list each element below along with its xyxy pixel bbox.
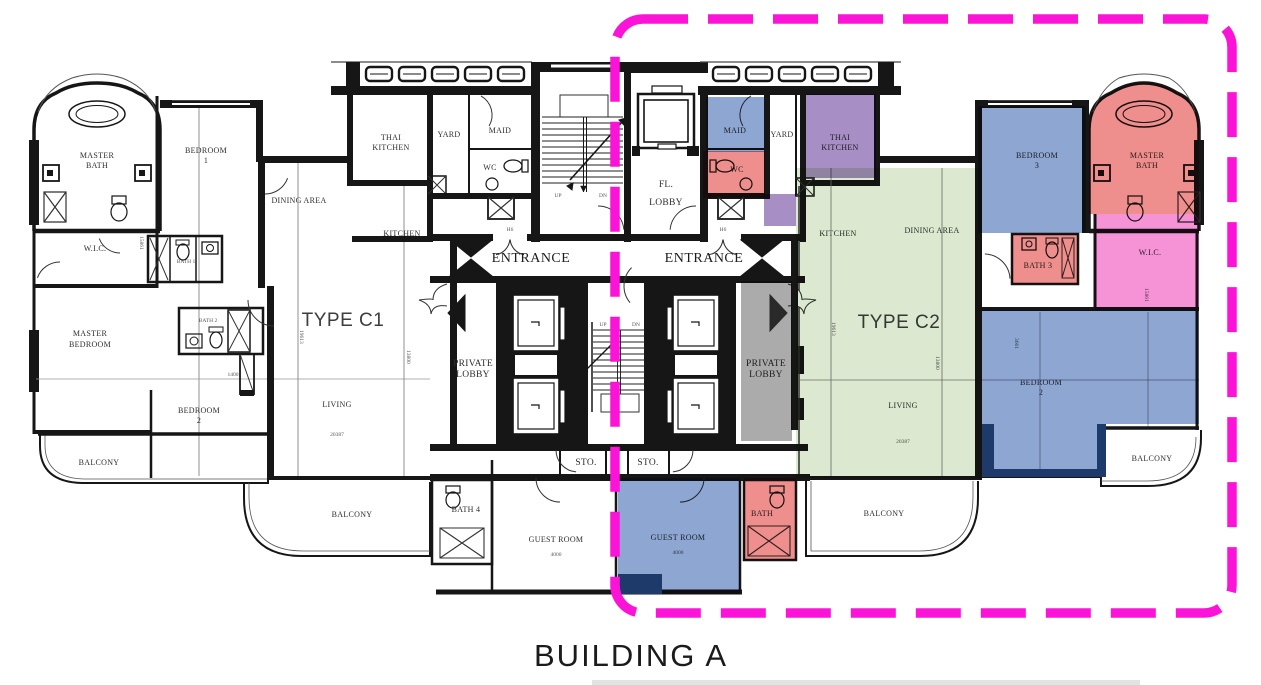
svg-text:UP: UP [554, 193, 561, 199]
svg-text:BATH 1: BATH 1 [177, 259, 196, 265]
svg-text:BALCONY: BALCONY [864, 509, 905, 518]
svg-text:19613: 19613 [298, 330, 304, 344]
svg-text:LIVING: LIVING [322, 400, 351, 409]
svg-text:BATH: BATH [86, 161, 108, 170]
svg-text:BEDROOM: BEDROOM [185, 146, 227, 155]
svg-text:YARD: YARD [438, 130, 461, 139]
svg-text:WC: WC [483, 163, 497, 172]
svg-text:MASTER: MASTER [73, 329, 108, 338]
svg-text:DN: DN [599, 193, 607, 199]
svg-text:BEDROOM: BEDROOM [178, 406, 220, 415]
svg-text:BATH 2: BATH 2 [199, 318, 218, 324]
svg-text:BALCONY: BALCONY [332, 510, 373, 519]
svg-text:MASTER: MASTER [80, 151, 115, 160]
svg-text:BEDROOM: BEDROOM [69, 340, 111, 349]
svg-text:BATH 4: BATH 4 [452, 505, 481, 514]
svg-text:FL.: FL. [659, 180, 673, 190]
svg-text:BUILDING A: BUILDING A [534, 638, 728, 673]
svg-text:H6: H6 [507, 227, 514, 233]
svg-text:LOBBY: LOBBY [649, 198, 683, 208]
svg-text:1400: 1400 [228, 372, 239, 378]
svg-text:KITCHEN: KITCHEN [372, 143, 409, 152]
svg-text:DN: DN [632, 322, 640, 328]
svg-text:STO.: STO. [575, 458, 596, 468]
svg-text:20387: 20387 [330, 432, 344, 438]
svg-text:4000: 4000 [551, 552, 562, 558]
svg-text:13800: 13800 [405, 350, 411, 364]
svg-text:2: 2 [197, 416, 201, 425]
svg-text:STO.: STO. [637, 458, 658, 468]
svg-text:TYPE C1: TYPE C1 [302, 310, 385, 331]
svg-text:LOBBY: LOBBY [456, 370, 490, 380]
svg-text:BALCONY: BALCONY [79, 458, 120, 467]
svg-text:DINING AREA: DINING AREA [271, 196, 326, 205]
svg-text:H6: H6 [720, 227, 727, 233]
svg-text:ENTRANCE: ENTRANCE [492, 251, 571, 266]
svg-text:GUEST ROOM: GUEST ROOM [529, 535, 584, 544]
svg-text:PRIVATE: PRIVATE [453, 359, 493, 369]
svg-text:UP: UP [599, 322, 606, 328]
svg-text:ENTRANCE: ENTRANCE [665, 251, 744, 266]
svg-text:1: 1 [204, 156, 208, 165]
svg-text:BALCONY: BALCONY [1132, 454, 1173, 463]
svg-text:YARD: YARD [771, 130, 794, 139]
svg-text:MAID: MAID [489, 126, 512, 135]
svg-text:THAI: THAI [381, 133, 401, 142]
svg-text:15861: 15861 [138, 236, 144, 250]
